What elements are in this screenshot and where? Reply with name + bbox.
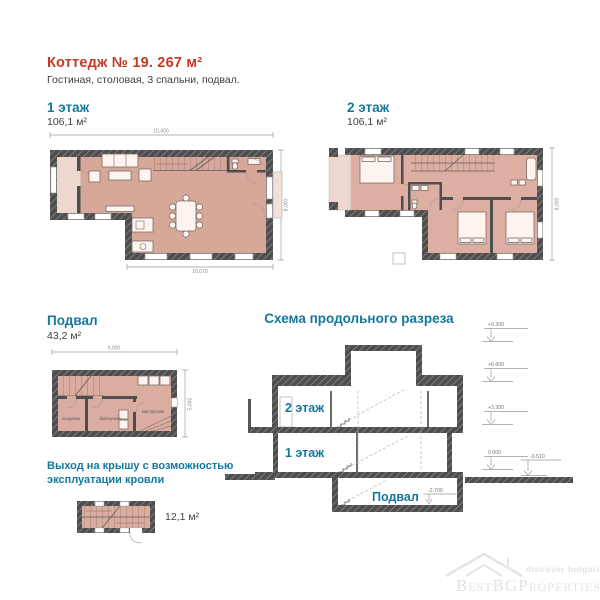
section-balcony-rail — [248, 399, 251, 427]
floor1-armchair-right — [139, 169, 151, 181]
floor2-dim-right: 8,000 — [555, 198, 561, 211]
floor1-armchair-left — [89, 171, 100, 182]
floor2-post — [393, 253, 405, 264]
floor1-porch — [273, 172, 282, 218]
floor1-plan: 15,400 10,070 8,000 — [40, 122, 295, 274]
floor2-bed-mid — [458, 212, 486, 244]
section-ground-slab — [255, 472, 463, 478]
elev-ridge-label: +9.200 — [488, 322, 504, 328]
floor2-heading: 2 этаж — [347, 100, 389, 115]
floor1-sideboard — [106, 206, 134, 212]
elev-terrain-label: -0.510 — [530, 454, 545, 460]
floor2-plan: 8,000 — [325, 142, 575, 272]
basement-heading: Подвал — [47, 313, 98, 328]
elev-floor2-label: +3.300 — [488, 405, 504, 411]
watermark: discover bulgaria BestBGProperties — [428, 546, 596, 598]
floor2-dimensions: 8,000 — [549, 148, 561, 260]
page-title: Коттедж № 19. 267 м² — [47, 55, 202, 71]
floor2-stairs-icon — [411, 155, 495, 171]
section-roof-right — [422, 375, 463, 386]
section-floor2-label: 2 этаж — [285, 401, 324, 415]
section-basement-label: Подвал — [372, 490, 419, 504]
elev-attic-label: +6.600 — [488, 362, 504, 368]
floor1-terrace — [57, 157, 77, 213]
watermark-roof-icon — [446, 554, 522, 576]
floor2-bed-left — [360, 156, 394, 183]
section-slab — [248, 427, 463, 433]
elev-basement-label: -2.700 — [428, 488, 443, 494]
floor2-bathtub — [527, 158, 537, 180]
floor2-terrace — [329, 155, 351, 210]
roof-plan-stairs-icon — [82, 506, 150, 528]
roof-plan-door-gap — [130, 528, 142, 533]
floor1-dim-right: 8,000 — [284, 199, 290, 212]
roof-access-note-line2: эксплуатации кровли — [47, 474, 164, 486]
watermark-brand: BestBGProperties — [456, 576, 600, 595]
elevation-ridge: +9.200 — [482, 322, 528, 342]
floor1-stairs-icon — [153, 157, 227, 171]
basement-room-boiler: бойлерная — [99, 416, 120, 421]
basement-room-storage: кладовка — [62, 416, 81, 421]
basement-area: 43,2 м² — [47, 330, 81, 342]
roof-access-plan — [72, 496, 222, 546]
floor1-dim-top: 15,400 — [153, 129, 169, 135]
section-terrain-left — [225, 474, 275, 480]
basement-plan: 9,000 5,000 кладовка бойлерная мастерска… — [45, 344, 215, 446]
section-roof-left — [272, 375, 345, 386]
elev-zero-label: 0.000 — [488, 450, 501, 456]
floor1-dim-bottom: 10,070 — [192, 269, 208, 275]
section-roof-exit — [345, 345, 422, 388]
floor2-area: 106,1 м² — [347, 116, 387, 128]
roof-access-area: 12,1 м² — [165, 511, 199, 523]
elevation-floor2: +3.300 — [482, 405, 528, 425]
basement-boiler2 — [119, 420, 128, 429]
elevation-terrain: -0.510 — [521, 454, 561, 476]
page-subtitle: Гостиная, столовая, 3 спальни, подвал. — [47, 74, 240, 86]
basement-dim-right: 5,000 — [188, 398, 194, 411]
basement-stairs-icon — [58, 376, 104, 396]
floor2-bed-right — [506, 212, 534, 244]
floor1-coffee-table — [109, 171, 131, 180]
floor1-sofa — [102, 154, 138, 167]
plan-sheet: { "colors": { "accent_red": "#c13a27", "… — [0, 0, 600, 600]
elevation-attic: +6.600 — [482, 362, 528, 382]
basement-dim-top: 9,000 — [108, 346, 121, 352]
floor1-heading: 1 этаж — [47, 100, 89, 115]
section-drawing: 2 этаж 1 этаж Подвал -2.700 +9.200 +6.60… — [225, 315, 575, 540]
section-terrain-right — [465, 477, 573, 483]
section-floor1-label: 1 этаж — [285, 446, 324, 460]
roof-access-note-line1: Выход на крышу с возможностью — [47, 460, 233, 472]
floor2-sink2 — [519, 180, 526, 185]
floor2-sink — [511, 180, 518, 185]
basement-room-workshop: мастерская — [142, 409, 164, 414]
basement-shelves — [138, 376, 170, 385]
watermark-tagline: discover bulgaria — [526, 564, 600, 574]
